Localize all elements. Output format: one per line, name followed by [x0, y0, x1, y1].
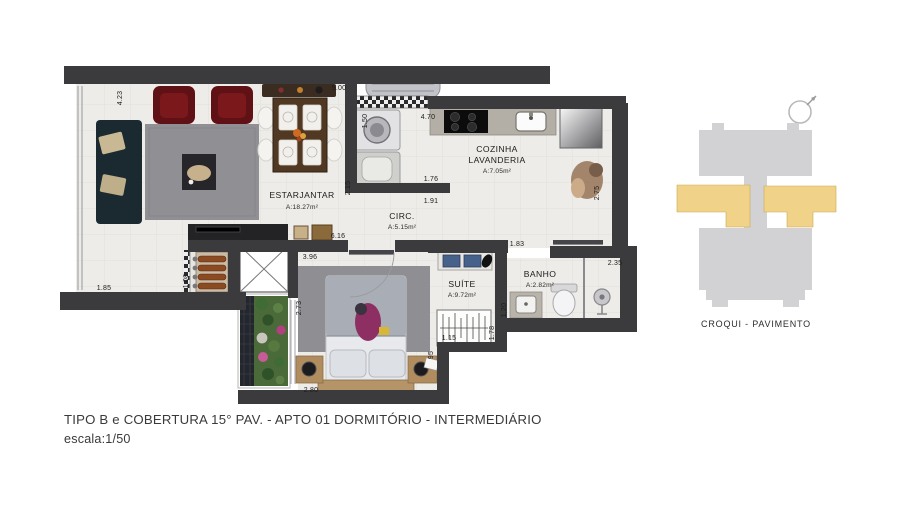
- laundry-window-grate: [352, 96, 428, 108]
- dim-label: 1.85: [97, 285, 111, 292]
- dining-table: [273, 98, 327, 172]
- room-area-cozinha: A:7.05m²: [483, 168, 512, 175]
- buffet-sideboard: [262, 84, 336, 97]
- armchair: [153, 86, 195, 124]
- washing-machine: [354, 110, 400, 150]
- room-area-circ: A:5.15m²: [388, 224, 417, 231]
- shaft-box: [240, 246, 288, 292]
- entry-door: [553, 240, 603, 245]
- room-area-banho: A:2.82m²: [526, 282, 555, 289]
- room-label-estarjantar: ESTARJANTAR: [269, 190, 334, 200]
- armchair: [211, 86, 253, 124]
- vanity-sink: [510, 292, 542, 318]
- dim-label: 1.76: [424, 176, 438, 183]
- apartment-floor-plan-page: ESTARJANTAR A:18.27m² COZINHA LAVANDERIA…: [0, 0, 900, 509]
- dim-label: 3.96: [303, 254, 317, 261]
- dim-label: 1.20: [501, 303, 508, 317]
- sofa: [96, 120, 142, 224]
- dim-label: 95: [428, 351, 435, 359]
- tv: [196, 227, 240, 232]
- room-label-banho: BANHO: [524, 269, 557, 279]
- wall-art: [294, 226, 308, 239]
- room-area-suite: A:9.72m²: [448, 292, 477, 299]
- dim-label: 1.15: [442, 335, 456, 342]
- dim-label: 4.23: [117, 91, 124, 105]
- plan-scale: escala:1/50: [64, 432, 131, 446]
- floor-plan-image: ESTARJANTAR A:18.27m² COZINHA LAVANDERIA…: [0, 0, 900, 509]
- dim-label: 6.16: [331, 233, 345, 240]
- laundry-tank: [354, 152, 400, 186]
- dim-label: 4.70: [421, 114, 435, 121]
- dim-label: 2.75: [594, 186, 601, 200]
- room-area-estarjantar: A:18.27m²: [286, 204, 319, 211]
- croqui-caption: CROQUI - PAVIMENTO: [701, 319, 811, 329]
- dim-label: 2.73: [296, 301, 303, 315]
- dim-label: 2.15: [345, 181, 352, 195]
- fridge: [560, 106, 602, 148]
- room-label-suite: SUÍTE: [448, 279, 475, 289]
- plan-title: TIPO B e COBERTURA 15° PAV. - APTO 01 DO…: [64, 412, 542, 427]
- dim-label: 1.91: [424, 198, 438, 205]
- dim-label: 5.00: [332, 85, 346, 92]
- coffee-table: [182, 154, 216, 190]
- dim-label: 2.35: [608, 260, 622, 267]
- dim-label: 1.78: [489, 326, 496, 340]
- kitchen-sink: [516, 112, 546, 131]
- dim-label: 2.80: [304, 387, 318, 394]
- dim-label: 1.50: [362, 114, 369, 128]
- dresser: [438, 252, 494, 270]
- dim-label: 1.83: [510, 241, 524, 248]
- toilet: [551, 284, 577, 316]
- headboard: [318, 380, 414, 391]
- cooktop: [444, 110, 488, 133]
- bedside-table: [296, 356, 323, 383]
- room-label-lavanderia: LAVANDERIA: [468, 155, 525, 165]
- room-label-cozinha: COZINHA: [476, 144, 517, 154]
- room-label-circ: CIRC.: [389, 211, 414, 221]
- wall-art: [312, 225, 332, 240]
- barbecue-grill: [184, 248, 232, 296]
- dim-label: 1.08: [183, 274, 190, 288]
- suite-door: [349, 250, 394, 255]
